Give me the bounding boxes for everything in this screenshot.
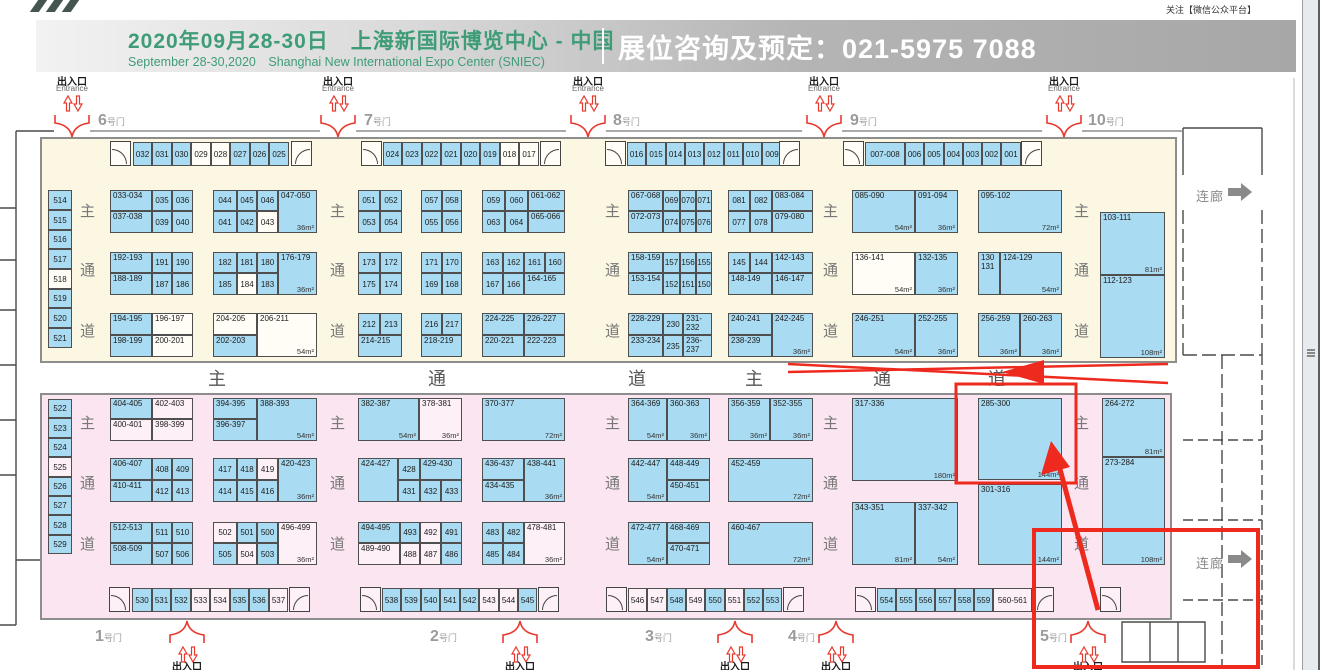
booth-163: 163 [482, 252, 503, 273]
booth-017: 017 [519, 142, 539, 166]
booth-502: 502 [213, 522, 237, 543]
booth-183: 183 [257, 273, 278, 295]
booth-145: 145 [728, 252, 750, 273]
aisle-label: 道 [80, 320, 95, 341]
booth-018: 018 [500, 142, 519, 166]
booth-188-189: 188-189 [110, 273, 152, 295]
door-icon [855, 587, 876, 612]
booth-525: 525 [48, 457, 72, 477]
booth-061-062: 061-062 [528, 190, 565, 211]
booth-533: 533 [191, 588, 210, 612]
aisle-label: 道 [823, 533, 838, 554]
entrance-label-cn: 出入口 [155, 658, 219, 670]
booth-428: 428 [398, 458, 420, 480]
booth-552: 552 [744, 588, 763, 612]
booth-396-397: 396-397 [213, 419, 257, 441]
booth-551: 551 [725, 588, 744, 612]
booth-028: 028 [211, 142, 230, 166]
booth-500: 500 [257, 522, 278, 543]
gate-label: 7号门 [364, 112, 391, 130]
booth-478-481: 478-48136m² [524, 522, 565, 565]
booth-400-401: 400-401 [110, 419, 152, 441]
booth-200-201: 200-201 [152, 335, 193, 357]
booth-002: 002 [982, 142, 1001, 166]
booth-030: 030 [172, 142, 191, 166]
booth-537: 537 [269, 588, 288, 612]
door-icon [110, 141, 131, 166]
booth-534: 534 [210, 588, 230, 612]
booth-013: 013 [685, 142, 704, 166]
booth-064: 064 [505, 211, 528, 233]
corridor-label: 连廊 [1196, 553, 1224, 572]
booth-242-245: 242-24536m² [772, 313, 813, 357]
booth-196-197: 196-197 [152, 313, 193, 335]
booth-507: 507 [152, 543, 172, 565]
booth-460-467: 460-46772m² [728, 522, 813, 565]
booth-382-387: 382-38754m² [358, 398, 419, 441]
gate-label: 8号门 [613, 112, 640, 130]
vertical-scrollbar[interactable] [1302, 0, 1320, 670]
aisle-label: 通 [80, 472, 95, 493]
booth-042: 042 [237, 211, 257, 233]
booth-356-359: 356-35936m² [728, 398, 770, 441]
entrance-label-cn: 出入口 [703, 658, 767, 670]
door-icon [1033, 587, 1054, 612]
booth-501: 501 [237, 522, 257, 543]
booth-511: 511 [152, 522, 172, 543]
booth-494-495: 494-495 [358, 522, 400, 543]
aisle-label: 通 [823, 472, 838, 493]
entrance-label-en: Entrance [40, 84, 104, 93]
booth-240-241: 240-241 [728, 313, 772, 335]
booth-190: 190 [172, 252, 193, 273]
door-icon [538, 587, 559, 612]
booth-214-215: 214-215 [358, 335, 402, 357]
entrance-label-en: Entrance [306, 84, 370, 93]
floor-plan: 0320310300290280270260250240230220210200… [0, 0, 1320, 670]
booth-364-369: 364-36954m² [628, 398, 667, 441]
aisle-label: 主 [330, 200, 345, 221]
aisle-label: 通 [330, 472, 345, 493]
booth-039: 039 [152, 211, 172, 233]
booth-181: 181 [237, 252, 257, 273]
booth-167: 167 [482, 273, 503, 295]
booth-035: 035 [152, 190, 172, 211]
gate-label: 4号门 [788, 628, 815, 646]
aisle-label: 主 [823, 200, 838, 221]
booth-224-225: 224-225 [482, 313, 524, 335]
booth-429-430: 429-430 [420, 458, 462, 480]
booth-043: 043 [257, 211, 278, 233]
booth-535: 535 [230, 588, 249, 612]
booth-031: 031 [152, 142, 172, 166]
booth-503: 503 [257, 543, 278, 565]
booth-150: 150 [696, 273, 712, 295]
booth-523: 523 [48, 418, 72, 438]
booth-394-395: 394-395 [213, 398, 257, 419]
booth-285-300: 285-300144m² [978, 398, 1062, 480]
booth-416: 416 [257, 480, 278, 502]
aisle-label: 主 [80, 412, 95, 433]
aisle-label: 通 [80, 259, 95, 280]
booth-542: 542 [460, 588, 479, 612]
booth-235: 235 [663, 335, 683, 357]
gate-arch-icon [717, 620, 753, 644]
booth-142-143: 142-143 [772, 252, 813, 273]
booth-040: 040 [172, 211, 193, 233]
booth-555: 555 [896, 588, 916, 612]
booth-492: 492 [420, 522, 441, 543]
booth-185: 185 [213, 273, 237, 295]
booth-520: 520 [48, 308, 72, 328]
booth-075: 075 [680, 211, 696, 233]
entrance-arrows-icon [573, 93, 603, 113]
booth-547: 547 [647, 588, 667, 612]
main-aisle-label: 通 [873, 365, 891, 391]
booth-231-232: 231-232 [683, 313, 712, 335]
main-aisle-label: 主 [745, 365, 763, 391]
aisle-label: 主 [1074, 200, 1089, 221]
booth-029: 029 [191, 142, 211, 166]
booth-414: 414 [213, 480, 237, 502]
gate-label: 5号门 [1040, 628, 1067, 646]
booth-418: 418 [237, 458, 257, 480]
booth-388-393: 388-39354m² [257, 398, 317, 441]
booth-415: 415 [237, 480, 257, 502]
aisle-label: 通 [605, 472, 620, 493]
door-icon [289, 587, 310, 612]
booth-432: 432 [420, 480, 441, 502]
entrance-arrows-icon [323, 93, 353, 113]
entrance-label-cn: 出入口 [488, 658, 552, 670]
aisle-label: 道 [823, 320, 838, 341]
booth-071: 071 [696, 190, 712, 211]
booth-091-094: 091-09436m² [915, 190, 958, 233]
booth-526: 526 [48, 477, 72, 496]
booth-060: 060 [505, 190, 528, 211]
booth-360-363: 360-36336m² [667, 398, 710, 441]
booth-228-229: 228-229 [628, 313, 663, 335]
booth-448-449: 448-449 [667, 458, 710, 480]
entrance-label-cn: 出入口 [1056, 658, 1120, 670]
booth-003: 003 [963, 142, 982, 166]
booth-530: 530 [132, 588, 152, 612]
booth-524: 524 [48, 438, 72, 457]
aisle-label: 主 [605, 412, 620, 433]
booth-148-149: 148-149 [728, 273, 772, 295]
aisle-label: 主 [80, 200, 95, 221]
booth-058: 058 [442, 190, 462, 211]
gate-label: 6号门 [98, 112, 125, 130]
booth-417: 417 [213, 458, 237, 480]
booth-527: 527 [48, 496, 72, 515]
booth-067-068: 067-068 [628, 190, 663, 211]
booth-529: 529 [48, 535, 72, 554]
booth-004: 004 [944, 142, 963, 166]
booth-130-131: 130 131 [978, 252, 1000, 295]
corridor-label: 连廊 [1196, 186, 1224, 205]
booth-489-490: 489-490 [358, 543, 400, 565]
booth-521: 521 [48, 328, 72, 348]
booth-166: 166 [503, 273, 524, 295]
booth-069: 069 [663, 190, 680, 211]
booth-236-237: 236-237 [683, 335, 712, 357]
booth-044: 044 [213, 190, 237, 211]
booth-218-219: 218-219 [421, 335, 462, 357]
booth-433: 433 [441, 480, 462, 502]
booth-186: 186 [172, 273, 193, 295]
entrance-label-en: Entrance [792, 84, 856, 93]
booth-438-441: 438-44136m² [524, 458, 565, 502]
booth-238-239: 238-239 [728, 335, 772, 357]
booth-420-423: 420-42336m² [278, 458, 317, 502]
booth-023: 023 [402, 142, 422, 166]
door-icon [779, 141, 800, 166]
booth-486: 486 [441, 543, 462, 565]
booth-413: 413 [172, 480, 193, 502]
booth-026: 026 [250, 142, 269, 166]
gate-label: 1号门 [95, 628, 122, 646]
booth-450-451: 450-451 [667, 480, 710, 502]
booth-172: 172 [380, 252, 402, 273]
booth-419: 419 [257, 458, 278, 480]
booth-155: 155 [696, 252, 712, 273]
booth-005: 005 [924, 142, 944, 166]
booth-546: 546 [628, 588, 647, 612]
booth-007-008: 007-008 [865, 142, 905, 166]
booth-025: 025 [269, 142, 289, 166]
booth-487: 487 [420, 543, 441, 565]
booth-085-090: 085-09054m² [852, 190, 915, 233]
booth-081: 081 [728, 190, 750, 211]
door-icon [361, 141, 382, 166]
booth-488: 488 [400, 543, 420, 565]
aisle-label: 通 [1074, 259, 1089, 280]
booth-424-427: 424-427 [358, 458, 398, 502]
booth-508-509: 508-509 [110, 543, 152, 565]
door-icon [1100, 587, 1121, 612]
booth-252-255: 252-25536m² [915, 313, 958, 357]
booth-560-561: 560-561 [993, 588, 1032, 612]
booth-222-223: 222-223 [524, 335, 565, 357]
door-icon [360, 587, 381, 612]
booth-504: 504 [237, 543, 257, 565]
booth-517: 517 [48, 249, 72, 269]
booth-180: 180 [257, 252, 278, 273]
booth-273-284: 273-284108m² [1102, 457, 1165, 565]
booth-541: 541 [440, 588, 460, 612]
booth-053: 053 [358, 211, 380, 233]
booth-554: 554 [877, 588, 896, 612]
booth-158-159: 158-159 [628, 252, 663, 273]
entrance-label-en: Entrance [556, 84, 620, 93]
booth-514: 514 [48, 190, 72, 210]
booth-095-102: 095-10272m² [978, 190, 1062, 233]
entrance-arrows-icon [1049, 93, 1079, 113]
main-aisle-label: 道 [628, 365, 646, 391]
booth-132-135: 132-13536m² [915, 252, 958, 295]
booth-230: 230 [663, 313, 683, 335]
booth-184: 184 [237, 273, 257, 295]
booth-077: 077 [728, 211, 750, 233]
door-icon [843, 141, 864, 166]
booth-539: 539 [401, 588, 421, 612]
booth-549: 549 [686, 588, 705, 612]
booth-182: 182 [213, 252, 237, 273]
main-aisle-label: 主 [208, 365, 226, 391]
gate-arch-icon [818, 620, 854, 644]
door-icon [605, 141, 626, 166]
booth-202-203: 202-203 [213, 335, 257, 357]
booth-532: 532 [171, 588, 191, 612]
booth-054: 054 [380, 211, 402, 233]
booth-194-195: 194-195 [110, 313, 152, 335]
main-aisle-label: 道 [988, 365, 1006, 391]
booth-192-193: 192-193 [110, 252, 152, 273]
booth-001: 001 [1001, 142, 1021, 166]
aisle-label: 道 [1074, 320, 1089, 341]
gate-label: 2号门 [430, 628, 457, 646]
booth-528: 528 [48, 515, 72, 535]
booth-505: 505 [213, 543, 237, 565]
booth-019: 019 [480, 142, 500, 166]
booth-436-437: 436-437 [482, 458, 524, 480]
booth-409: 409 [172, 458, 193, 480]
scrollbar-grip-icon[interactable] [1307, 349, 1315, 351]
booth-168: 168 [442, 273, 462, 295]
booth-076: 076 [696, 211, 712, 233]
booth-136-141: 136-14154m² [852, 252, 915, 295]
booth-343-351: 343-35181m² [852, 502, 915, 565]
booth-493: 493 [400, 522, 420, 543]
door-icon [1021, 141, 1042, 166]
booth-146-147: 146-147 [772, 273, 813, 295]
booth-033-034: 033-034 [110, 190, 152, 211]
booth-442-447: 442-44754m² [628, 458, 667, 502]
booth-213: 213 [380, 313, 402, 335]
booth-550: 550 [705, 588, 725, 612]
booth-157: 157 [663, 252, 680, 273]
booth-175: 175 [358, 273, 380, 295]
booth-041: 041 [213, 211, 237, 233]
booth-164-165: 164-165 [524, 273, 565, 295]
booth-187: 187 [152, 273, 172, 295]
booth-540: 540 [421, 588, 440, 612]
booth-059: 059 [482, 190, 505, 211]
gate-arch-icon [320, 114, 356, 138]
booth-543: 543 [479, 588, 499, 612]
booth-011: 011 [724, 142, 743, 166]
booth-198-199: 198-199 [110, 335, 152, 357]
booth-074: 074 [663, 211, 680, 233]
aisle-label: 道 [330, 533, 345, 554]
aisle-label: 通 [823, 259, 838, 280]
booth-412: 412 [152, 480, 172, 502]
booth-191: 191 [152, 252, 172, 273]
booth-083-084: 083-084 [772, 190, 813, 211]
aisle-label: 主 [1074, 412, 1089, 433]
booth-170: 170 [442, 252, 462, 273]
entrance-arrows-icon [809, 93, 839, 113]
main-aisle-label: 通 [428, 365, 446, 391]
booth-485: 485 [482, 543, 503, 565]
booth-506: 506 [172, 543, 193, 565]
booth-559: 559 [974, 588, 993, 612]
booth-370-377: 370-37772m² [482, 398, 565, 441]
door-icon [291, 141, 312, 166]
booth-406-407: 406-407 [110, 458, 152, 480]
booth-548: 548 [667, 588, 686, 612]
booth-162: 162 [503, 252, 524, 273]
booth-176-179: 176-17936m² [278, 252, 317, 295]
booth-404-405: 404-405 [110, 398, 152, 419]
booth-078: 078 [750, 211, 772, 233]
aisle-label: 道 [1074, 533, 1089, 554]
booth-531: 531 [152, 588, 171, 612]
booth-112-123: 112-123108m² [1100, 275, 1165, 358]
booth-016: 016 [627, 142, 646, 166]
booth-079-080: 079-080 [772, 211, 813, 233]
booth-160: 160 [545, 252, 565, 273]
entrance-label-en: Entrance [1032, 84, 1096, 93]
entrance-arrows-icon [57, 93, 87, 113]
booth-015: 015 [646, 142, 666, 166]
entrance-label-cn: 出入口 [804, 658, 868, 670]
booth-337-342: 337-34254m² [915, 502, 958, 565]
booth-522: 522 [48, 399, 72, 418]
booth-006: 006 [905, 142, 924, 166]
booth-233-234: 233-234 [628, 335, 663, 357]
booth-538: 538 [382, 588, 401, 612]
booth-216: 216 [421, 313, 442, 335]
floorplan-page: 2020年09月28-30日 上海新国际博览中心 - 中国 September … [0, 0, 1320, 670]
booth-174: 174 [380, 273, 402, 295]
booth-037-038: 037-038 [110, 211, 152, 233]
booth-010: 010 [743, 142, 762, 166]
booth-082: 082 [750, 190, 772, 211]
booth-156: 156 [680, 252, 696, 273]
gate-arch-icon [502, 620, 538, 644]
booth-260-263: 260-26336m² [1020, 313, 1062, 357]
booth-204-205: 204-205 [213, 313, 257, 335]
door-icon [109, 587, 130, 612]
booth-171: 171 [421, 252, 442, 273]
booth-047-050: 047-05036m² [278, 190, 317, 233]
booth-065-066: 065-066 [528, 211, 565, 233]
booth-027: 027 [230, 142, 250, 166]
booth-022: 022 [422, 142, 441, 166]
booth-352-355: 352-35536m² [770, 398, 813, 441]
booth-220-221: 220-221 [482, 335, 524, 357]
gate-arch-icon [169, 620, 205, 644]
booth-032: 032 [133, 142, 152, 166]
aisle-label: 道 [605, 533, 620, 554]
booth-264-272: 264-27281m² [1102, 398, 1165, 457]
booth-173: 173 [358, 252, 380, 273]
booth-516: 516 [48, 230, 72, 249]
booth-556: 556 [916, 588, 935, 612]
booth-544: 544 [499, 588, 518, 612]
aisle-label: 通 [330, 259, 345, 280]
gate-arch-icon [1046, 114, 1082, 138]
gate-label: 9号门 [850, 112, 877, 130]
booth-020: 020 [461, 142, 480, 166]
booth-144: 144 [750, 252, 772, 273]
booth-024: 024 [383, 142, 402, 166]
aisle-label: 道 [605, 320, 620, 341]
aisle-label: 通 [1074, 472, 1089, 493]
booth-515: 515 [48, 210, 72, 230]
